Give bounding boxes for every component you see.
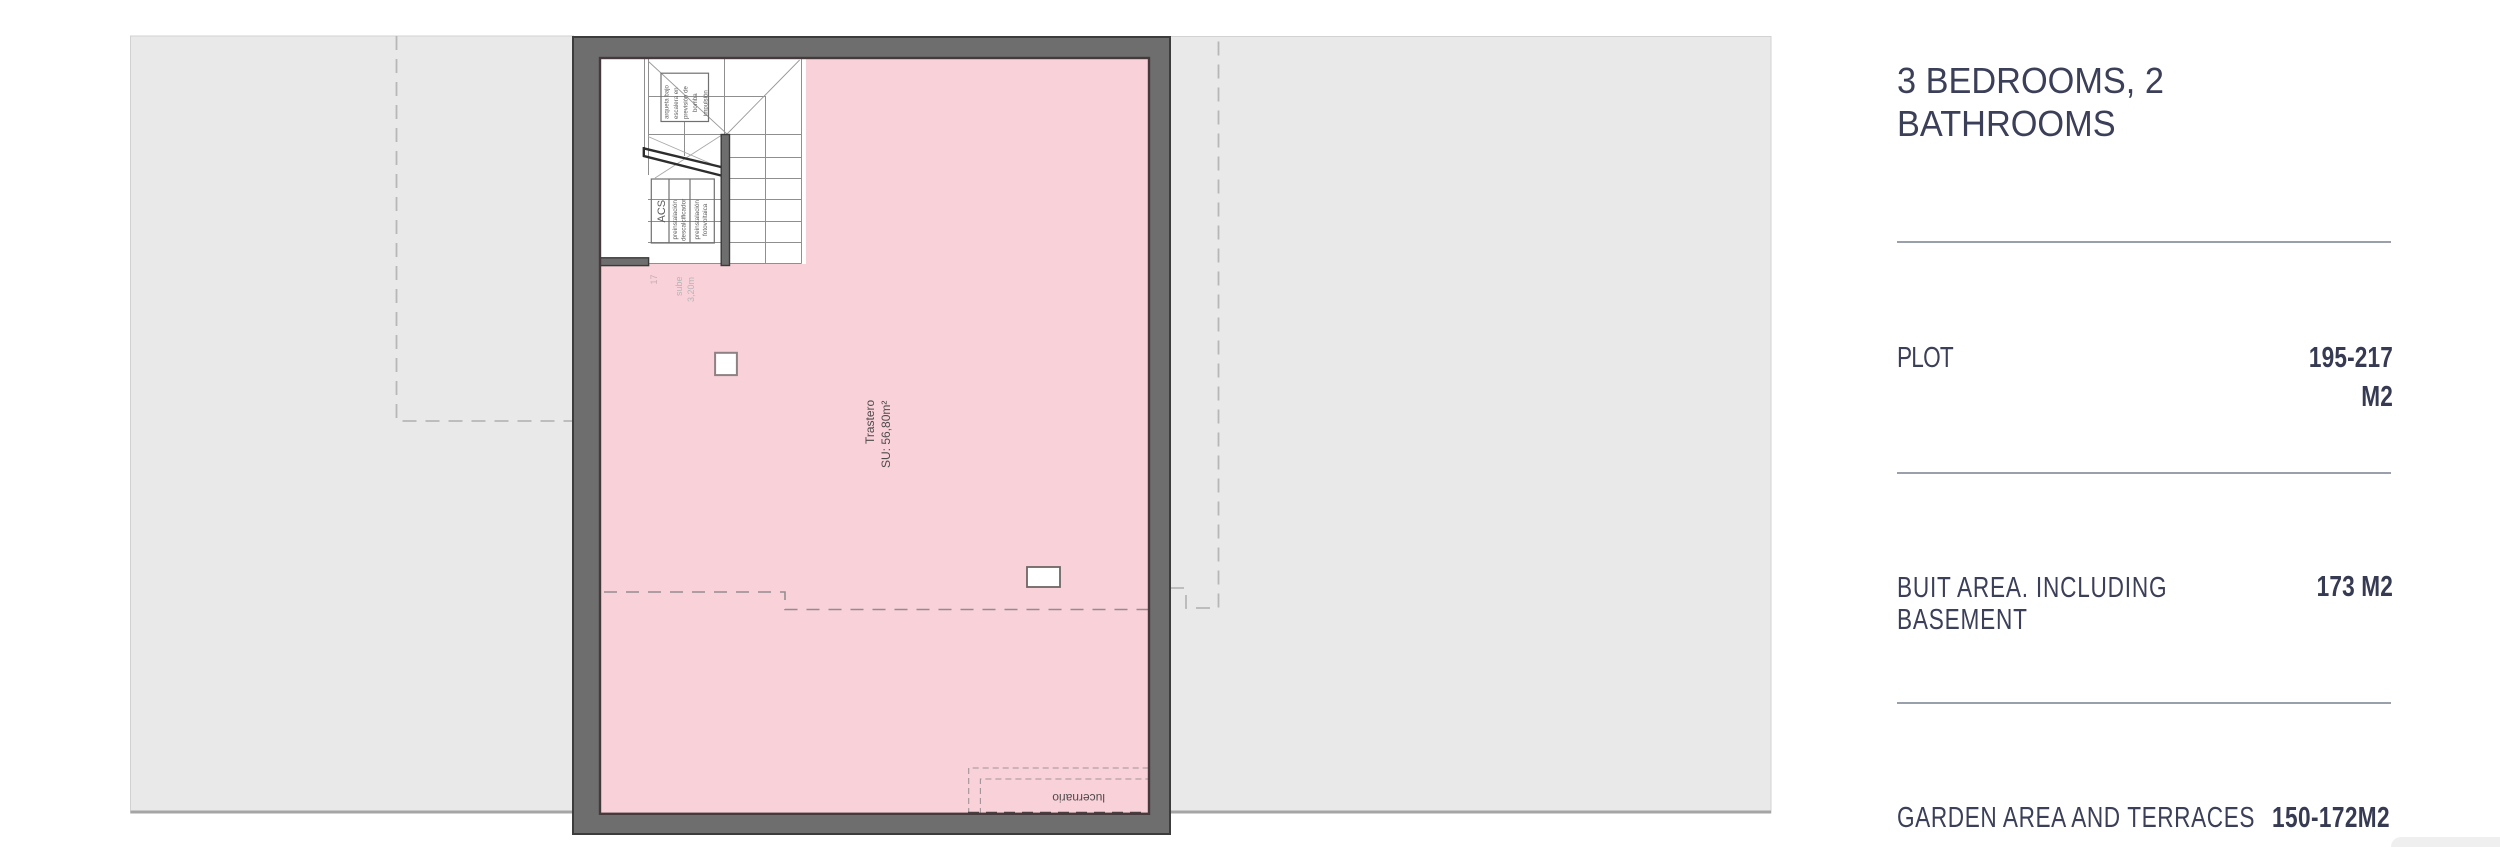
svg-text:arqueta bajo: arqueta bajo <box>664 85 671 119</box>
svg-text:3,20m: 3,20m <box>686 277 696 302</box>
svg-text:preinstalación: preinstalación <box>672 200 679 240</box>
svg-text:descalcificador: descalcificador <box>681 198 688 241</box>
svg-text:preinstalación: preinstalación <box>694 200 701 240</box>
svg-text:17: 17 <box>649 274 659 284</box>
svg-text:Trastero: Trastero <box>863 399 877 444</box>
svg-text:fotovoltaica: fotovoltaica <box>702 203 709 236</box>
svg-text:escalera en: escalera en <box>673 87 680 119</box>
svg-text:sube: sube <box>674 276 684 296</box>
svg-text:ACS: ACS <box>656 200 668 223</box>
svg-text:bomba: bomba <box>692 93 699 112</box>
svg-text:impulsión: impulsión <box>703 90 710 116</box>
svg-text:SU: 56,80m²: SU: 56,80m² <box>879 401 893 468</box>
svg-text:lucernario: lucernario <box>1052 791 1105 805</box>
svg-text:previsión de: previsión de <box>683 86 690 119</box>
